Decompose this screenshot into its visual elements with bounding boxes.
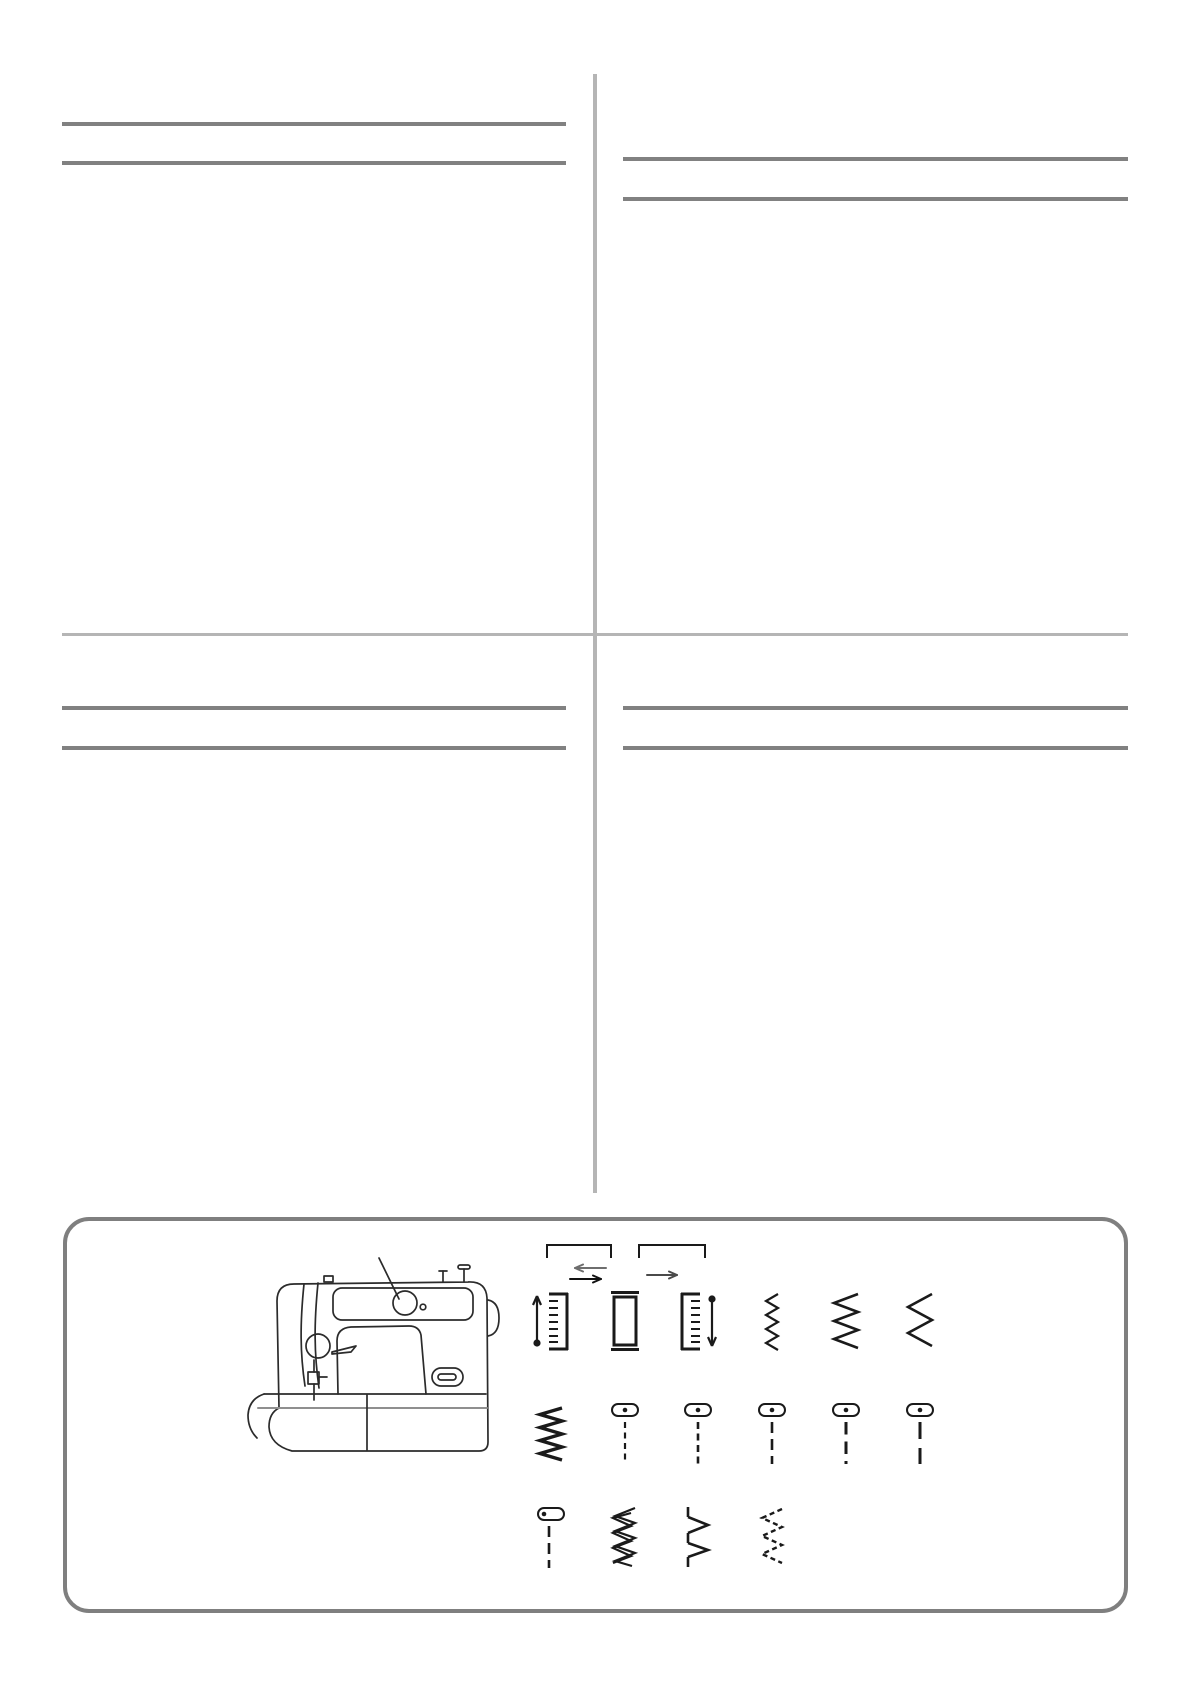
stitch-zigzag-dashed-icon	[748, 1504, 796, 1570]
stitch-stretch-short-icon	[674, 1402, 722, 1466]
stitch-stretch-longest-icon	[896, 1402, 944, 1466]
stitch-buttonhole-right-icon	[674, 1290, 722, 1352]
double-arrow-icon	[568, 1262, 608, 1288]
manual-page	[0, 0, 1190, 1684]
sewing-machine-illustration	[240, 1238, 505, 1468]
heading-rule-top-left-2	[62, 161, 566, 165]
stitch-elastic-overlock-icon	[601, 1504, 649, 1570]
stitch-buttonhole-mid-icon	[601, 1290, 649, 1352]
heading-rule-top-right-1	[623, 157, 1128, 161]
heading-rule-top-left-1	[62, 122, 566, 126]
heading-rule-mid-right-2	[623, 746, 1128, 750]
heading-rule-mid-left-1	[62, 706, 566, 710]
stitch-zigzag-dense-icon	[527, 1402, 575, 1466]
stitch-zigzag-wide-icon	[896, 1290, 944, 1352]
buttonhole-bracket-right	[638, 1244, 706, 1259]
dial-callout-line	[379, 1258, 399, 1299]
stitch-zigzag-narrow-icon	[748, 1290, 796, 1352]
stitch-stretch-medium-icon	[748, 1402, 796, 1466]
stitch-buttonhole-left-icon	[527, 1290, 575, 1352]
arrow-right-icon	[644, 1266, 684, 1284]
stitch-stretch-left-needle-icon	[527, 1504, 575, 1570]
heading-rule-mid-left-2	[62, 746, 566, 750]
pattern-selector-dial	[393, 1291, 417, 1315]
stitch-stretch-fine-icon	[601, 1402, 649, 1466]
column-divider-rule	[593, 74, 597, 1193]
stitch-zigzag-medium-icon	[822, 1290, 870, 1352]
stitch-stretch-long-icon	[822, 1402, 870, 1466]
heading-rule-top-right-2	[623, 197, 1128, 201]
heading-rule-mid-right-1	[623, 706, 1128, 710]
stitch-blind-hem-icon	[674, 1504, 722, 1570]
buttonhole-bracket-left	[546, 1244, 612, 1259]
